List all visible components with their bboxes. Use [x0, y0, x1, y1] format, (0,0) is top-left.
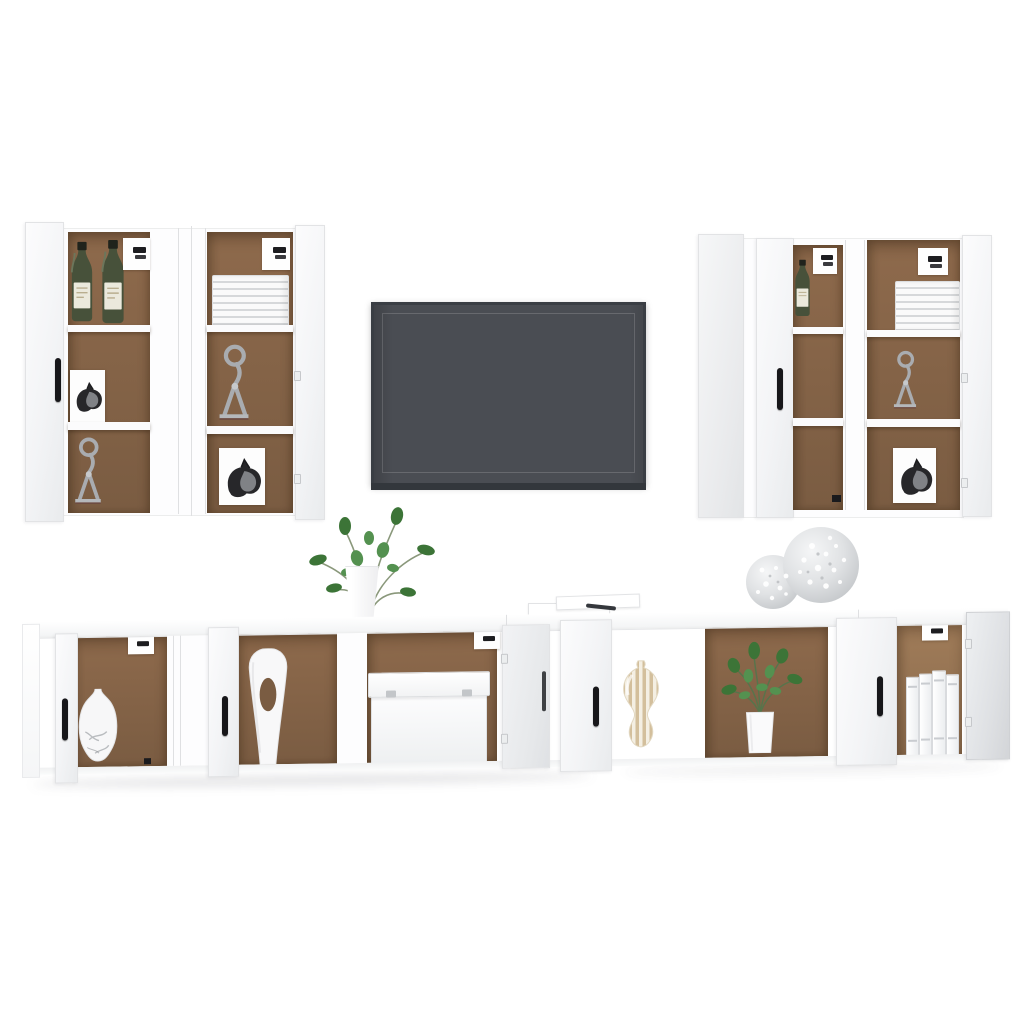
mounting-bracket: [813, 248, 837, 274]
floor-shadow: [32, 772, 592, 789]
bench-end-panel: [610, 628, 705, 759]
cabinet-interior: [68, 232, 150, 513]
cabinet-shelf: [68, 325, 150, 332]
tv: [371, 302, 646, 486]
hinge-plate: [832, 495, 841, 502]
bench-compartment: [367, 631, 497, 763]
bench-side-panel: [22, 624, 40, 778]
cutout-vase: [243, 648, 293, 765]
marble-vase: [75, 689, 121, 768]
door-handle: [222, 696, 228, 736]
storage-box: [368, 671, 490, 763]
hinge: [294, 371, 301, 381]
bench-open-door: [560, 619, 612, 772]
mounting-bracket: [123, 238, 150, 270]
bench-divider: [167, 635, 208, 766]
cabinet-open-door: [25, 222, 64, 522]
bench-open-door: [208, 627, 239, 777]
cabinet-shelf: [867, 330, 960, 337]
cabinet-interior: [793, 245, 843, 510]
horse-print: [219, 448, 265, 505]
cabinet-open-door: [756, 238, 794, 518]
bench-compartment: [897, 624, 962, 755]
hinge: [501, 654, 508, 664]
baubles: [742, 524, 862, 610]
cabinet-shelf: [207, 325, 293, 332]
hinge: [965, 639, 972, 649]
hinge-plate: [144, 758, 151, 764]
cabinet-seam: [191, 226, 192, 516]
door-handle: [542, 671, 546, 711]
binders: [906, 670, 958, 755]
product-photo-stage: [0, 0, 1024, 1024]
cabinet-seam: [864, 240, 865, 510]
cabinet-interior: [207, 232, 293, 513]
mounting-bracket: [918, 248, 948, 275]
striped-vase: [618, 654, 664, 759]
bench-open-door: [966, 611, 1010, 760]
cat-sculpture: [217, 338, 251, 426]
plate-stack: [212, 275, 289, 327]
cat-sculpture: [892, 340, 918, 419]
cabinet-seam: [205, 228, 206, 514]
horse-print: [893, 448, 936, 503]
wine-bottles: [794, 250, 811, 327]
cabinet-shelf: [793, 327, 843, 334]
cabinet-interior: [867, 240, 960, 510]
cabinet-seam: [178, 228, 179, 514]
tv-bench: [22, 607, 1008, 794]
tv-bottom-bar: [371, 483, 646, 490]
bench-open-door: [502, 624, 550, 769]
bench-compartment: [705, 626, 828, 758]
wine-bottles: [70, 240, 94, 325]
cabinet-shelf: [867, 419, 960, 427]
cabinet-shelf: [793, 418, 843, 426]
hinge: [961, 478, 968, 488]
mounting-bracket: [474, 631, 500, 649]
door-handle: [777, 368, 783, 410]
door-handle: [877, 676, 883, 716]
horse-print: [70, 370, 105, 422]
door-handle: [593, 686, 599, 726]
cabinet-open-door: [295, 225, 325, 520]
bench-divider: [337, 633, 367, 763]
cabinet-shelf: [207, 426, 293, 434]
cabinet-seam: [845, 240, 846, 510]
wall-cabinet-group-right: [698, 228, 992, 520]
mounting-bracket: [128, 636, 154, 654]
cabinet-open-door: [962, 235, 992, 517]
potted-plant: [710, 632, 810, 753]
bench-open-door: [836, 617, 897, 766]
hinge: [501, 734, 508, 744]
mounting-bracket: [922, 624, 948, 640]
mounting-bracket: [262, 238, 290, 270]
bench-compartment: [237, 633, 337, 764]
plate-stack: [895, 281, 960, 332]
tv-screen-shade: [374, 305, 643, 483]
hinge: [965, 717, 972, 727]
hinge: [294, 474, 301, 484]
bench-compartment: [72, 636, 167, 767]
door-handle: [55, 358, 61, 402]
hinge: [961, 373, 968, 383]
bench-open-door: [55, 633, 78, 783]
wall-cabinet-group-left: [25, 222, 323, 520]
door-handle: [62, 698, 68, 740]
cabinet-closed-door: [698, 234, 744, 518]
cat-sculpture: [73, 428, 103, 513]
